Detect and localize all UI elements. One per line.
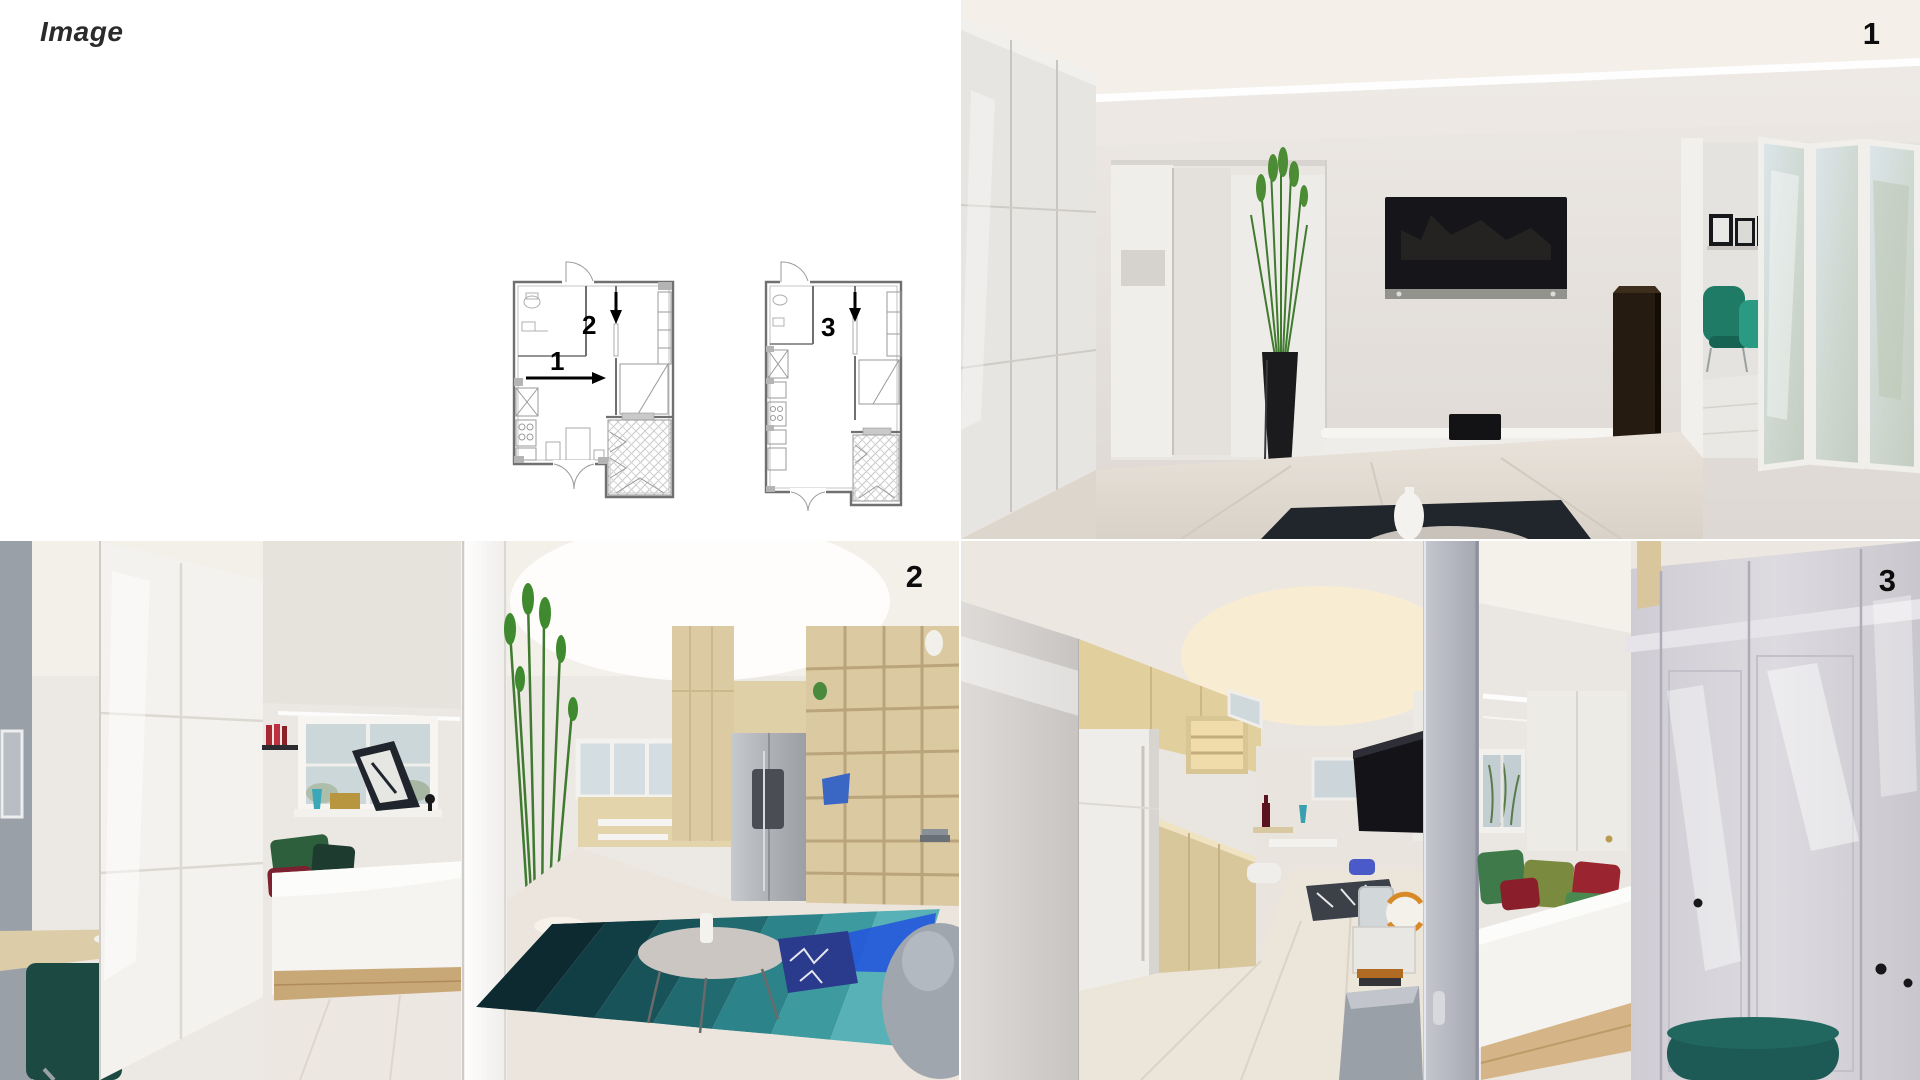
wall-frame (2, 731, 22, 817)
image-collage: Image (0, 0, 1920, 1080)
book-orange (1357, 969, 1403, 978)
water-dispenser (752, 769, 784, 829)
door-handle-plate (1433, 991, 1445, 1025)
pillow-crimson (1500, 877, 1541, 911)
wardrobe-left (961, 16, 1096, 539)
plan-a-furniture (546, 428, 604, 460)
balcony-room (1681, 138, 1920, 470)
floor-plan-a: 1 2 (510, 260, 678, 518)
view-panel-2: 2 (0, 541, 959, 1080)
left-cabinet-panel (961, 601, 1079, 1080)
view-label-1: 1 (1863, 18, 1880, 49)
bedroom-nook (262, 541, 466, 1080)
bottle-vase (700, 913, 713, 943)
page-title: Image (40, 16, 123, 48)
wood-strip (1637, 541, 1661, 609)
plan-a-arrow-2: 2 (582, 292, 622, 340)
bedroom-nook (1477, 541, 1631, 1080)
white-vase (925, 630, 943, 656)
book-dark (1359, 978, 1401, 986)
plan-a-bedroom (620, 292, 671, 414)
white-box (1353, 927, 1415, 973)
fridge (1079, 729, 1159, 991)
plan-b-bathroom (770, 286, 813, 344)
handle-knob (1694, 899, 1703, 908)
plan-a-kitchen (516, 388, 538, 460)
svg-text:1: 1 (550, 346, 564, 376)
plan-b-kitchen (768, 350, 788, 470)
floor-plan-b: 3 (763, 260, 908, 518)
plan-a-arrow-1: 1 (526, 346, 606, 384)
render-living-room (961, 0, 1920, 539)
bedroom-floor (263, 991, 463, 1080)
plan-a-balcony (608, 420, 671, 495)
view-panel-3: 3 (961, 541, 1920, 1080)
svg-text:2: 2 (582, 310, 596, 340)
bedroom-window (1479, 749, 1525, 833)
plan-b-bedroom (859, 292, 901, 404)
shelving-unit (806, 626, 959, 906)
teal-chair (1667, 1017, 1839, 1080)
view-panel-1: 1 (961, 0, 1920, 539)
wood-cabinets (672, 626, 734, 841)
media-box (1449, 414, 1501, 440)
plans-panel: Image (0, 0, 959, 539)
wardrobe (1625, 541, 1920, 1080)
kitchen-windows (578, 741, 683, 797)
handle-knob (1904, 979, 1913, 988)
partition-pillar (1423, 541, 1479, 1080)
folding-glass-doors (1761, 140, 1917, 470)
wardrobe (100, 541, 263, 1080)
render-bedroom-living (0, 541, 959, 1080)
tv (1385, 197, 1567, 299)
blue-cushion (1349, 859, 1375, 875)
handle-knob (1876, 964, 1887, 975)
gold-knob (1606, 836, 1613, 843)
view-label-2: 2 (906, 561, 923, 592)
svg-text:3: 3 (821, 312, 835, 342)
plan-b-arrow-3: 3 (821, 292, 861, 342)
view-label-3: 3 (1879, 565, 1896, 596)
pillow-navy (778, 931, 858, 993)
plan-b-balcony (853, 435, 899, 501)
render-kitchen-bedroom (961, 541, 1920, 1080)
bed (1477, 849, 1631, 1080)
fridge (731, 733, 808, 901)
plan-a-sliding-door (614, 324, 618, 356)
